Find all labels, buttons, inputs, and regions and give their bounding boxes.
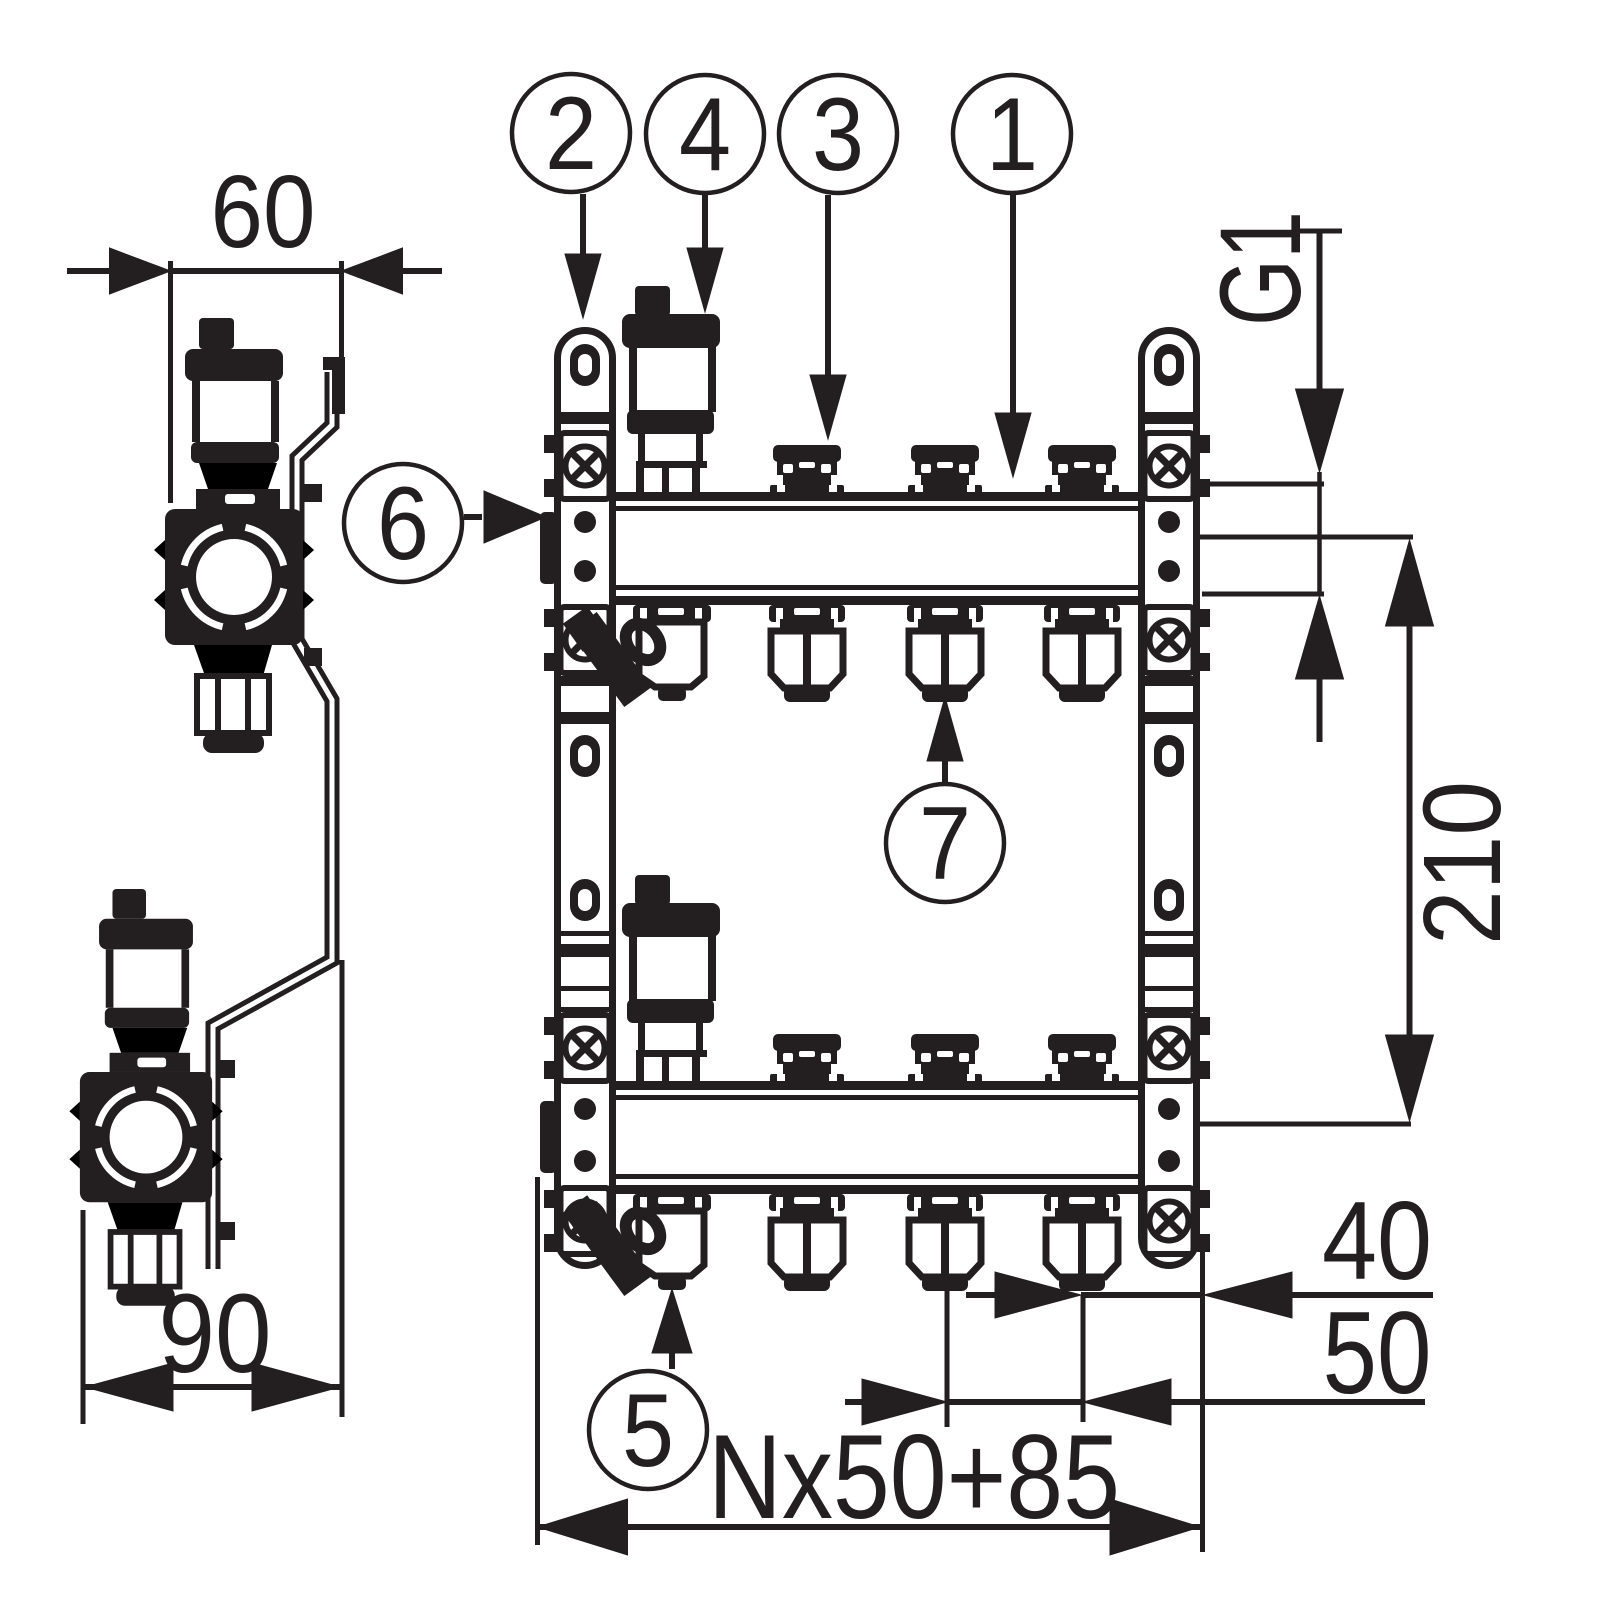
svg-text:1: 1 [986, 77, 1038, 193]
svg-text:50: 50 [1323, 1287, 1432, 1418]
svg-text:3: 3 [812, 77, 864, 193]
svg-text:60: 60 [211, 154, 316, 269]
svg-text:210: 210 [1401, 781, 1524, 945]
svg-text:5: 5 [622, 1373, 674, 1489]
svg-text:90: 90 [159, 1271, 272, 1396]
svg-text:G1: G1 [1197, 211, 1325, 326]
svg-text:2: 2 [545, 76, 597, 192]
svg-text:6: 6 [377, 466, 429, 582]
svg-text:7: 7 [919, 786, 971, 902]
svg-text:40: 40 [1322, 1179, 1432, 1303]
svg-text:Nx50+85: Nx50+85 [708, 1410, 1120, 1544]
svg-text:4: 4 [679, 77, 731, 193]
